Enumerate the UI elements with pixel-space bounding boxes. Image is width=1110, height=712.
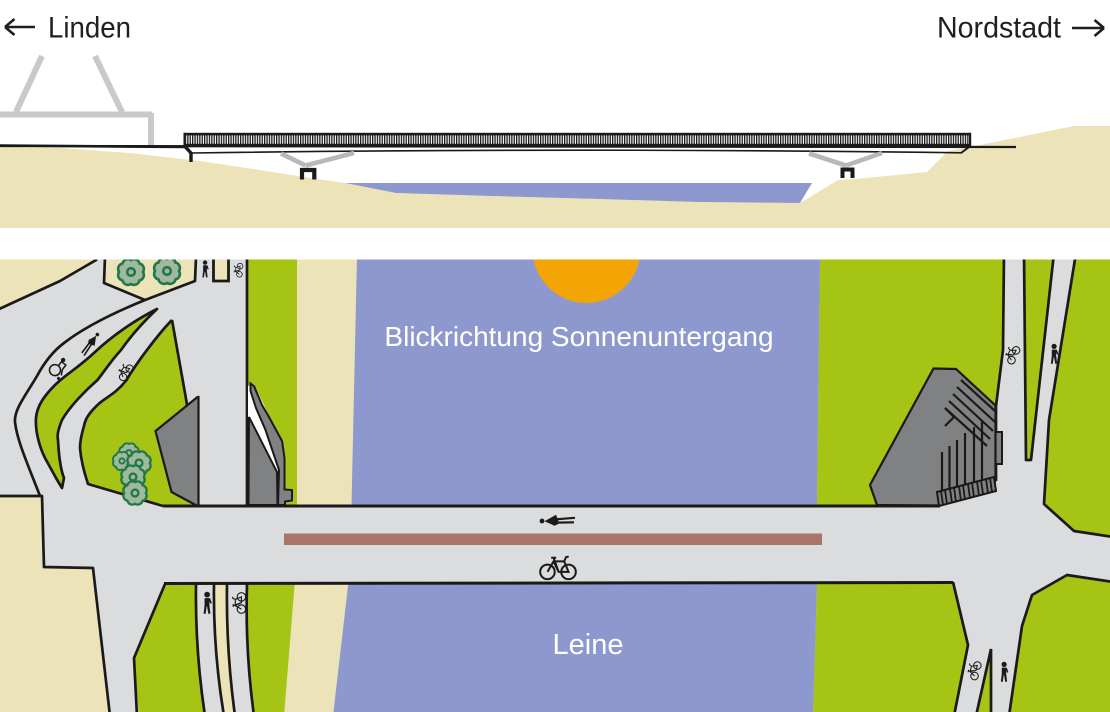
svg-text:Linden: Linden (48, 12, 131, 45)
svg-text:Nordstadt: Nordstadt (937, 12, 1062, 45)
svg-text:Blickrichtung Sonnenuntergang: Blickrichtung Sonnenuntergang (384, 321, 773, 352)
svg-text:Leine: Leine (553, 629, 624, 661)
